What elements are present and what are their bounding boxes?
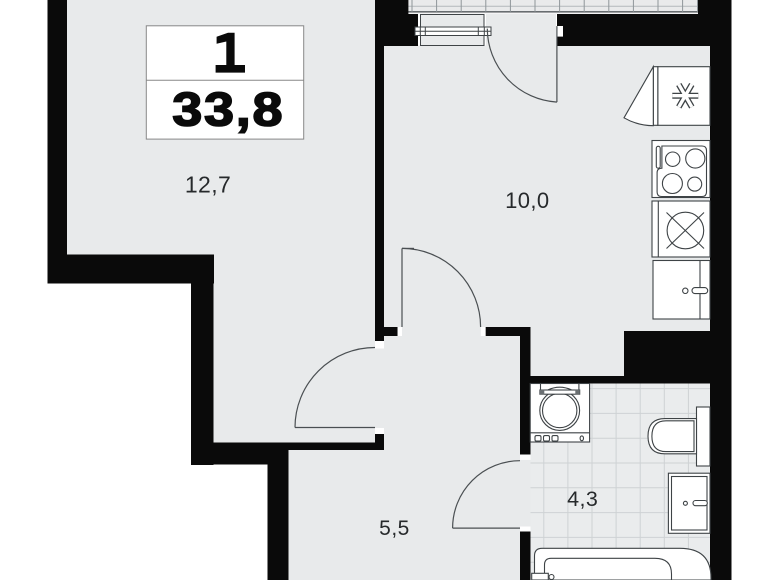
svg-text:10,0: 10,0 xyxy=(505,188,549,213)
svg-text:12,7: 12,7 xyxy=(185,172,231,198)
svg-text:5,5: 5,5 xyxy=(379,517,410,540)
svg-text:4,3: 4,3 xyxy=(567,487,598,511)
svg-text:33,8: 33,8 xyxy=(172,83,284,136)
